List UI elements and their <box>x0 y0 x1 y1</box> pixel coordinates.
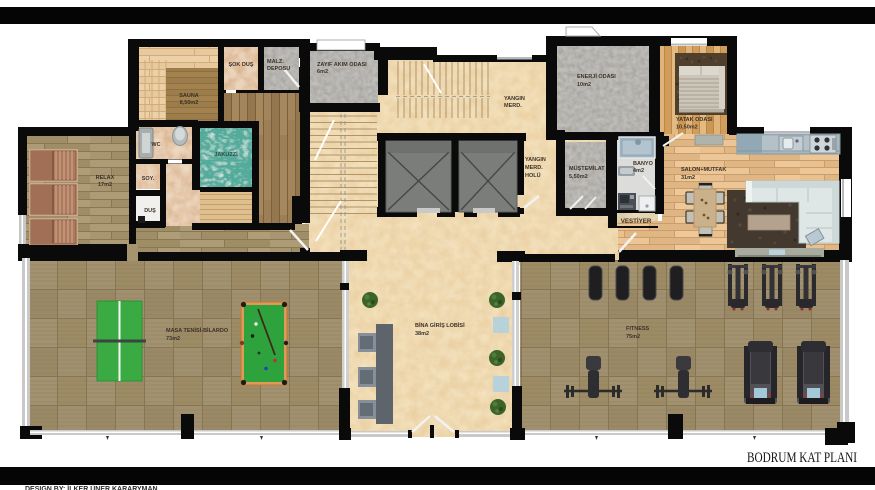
svg-text:VESTİYER: VESTİYER <box>621 218 652 225</box>
svg-text:73m2: 73m2 <box>166 336 180 342</box>
svg-text:MÜŞTEMİLAT: MÜŞTEMİLAT <box>569 165 605 172</box>
svg-text:DEPOSU: DEPOSU <box>267 66 290 72</box>
svg-text:SALON+MUTFAK: SALON+MUTFAK <box>681 167 726 173</box>
svg-text:17m2: 17m2 <box>98 182 112 188</box>
svg-text:31m2: 31m2 <box>681 175 695 181</box>
svg-text:BANYO: BANYO <box>633 161 654 167</box>
svg-text:10m2: 10m2 <box>577 82 591 88</box>
svg-text:YANGIN: YANGIN <box>504 96 525 102</box>
svg-text:10,50m2: 10,50m2 <box>676 125 698 131</box>
svg-text:MASA TENİSİ-BİLARDO: MASA TENİSİ-BİLARDO <box>166 327 229 334</box>
svg-text:JAKUZZİ: JAKUZZİ <box>214 151 238 158</box>
svg-text:75m2: 75m2 <box>626 334 640 340</box>
svg-text:YATAK ODASI: YATAK ODASI <box>676 117 713 123</box>
svg-text:DUŞ: DUŞ <box>144 208 156 214</box>
svg-text:FITNESS: FITNESS <box>626 326 650 332</box>
svg-text:38m2: 38m2 <box>415 331 429 337</box>
svg-text:5,50m2: 5,50m2 <box>569 174 588 180</box>
svg-text:ENERJİ ODASI: ENERJİ ODASI <box>577 73 616 80</box>
svg-text:HOLÜ: HOLÜ <box>525 172 541 179</box>
svg-text:SAUNA: SAUNA <box>179 93 199 99</box>
svg-text:WC: WC <box>151 142 160 148</box>
svg-text:MERD.: MERD. <box>525 165 543 171</box>
svg-text:BODRUM KAT PLANI: BODRUM KAT PLANI <box>747 450 857 466</box>
svg-text:6m2: 6m2 <box>317 69 328 75</box>
svg-text:YANGIN: YANGIN <box>525 157 546 163</box>
svg-text:MERD.: MERD. <box>504 103 522 109</box>
svg-text:MALZ.: MALZ. <box>267 59 284 65</box>
svg-text:BİNA GİRİŞ LOBİSİ: BİNA GİRİŞ LOBİSİ <box>415 322 465 329</box>
svg-text:RELAX: RELAX <box>96 175 115 181</box>
svg-text:8,50m2: 8,50m2 <box>180 100 199 106</box>
svg-text:SOY.: SOY. <box>142 176 155 182</box>
svg-text:ŞOK DUŞ: ŞOK DUŞ <box>228 62 253 68</box>
svg-text:4m2: 4m2 <box>633 168 644 174</box>
svg-text:ZAYIF AKIM ODASI: ZAYIF AKIM ODASI <box>317 62 367 68</box>
